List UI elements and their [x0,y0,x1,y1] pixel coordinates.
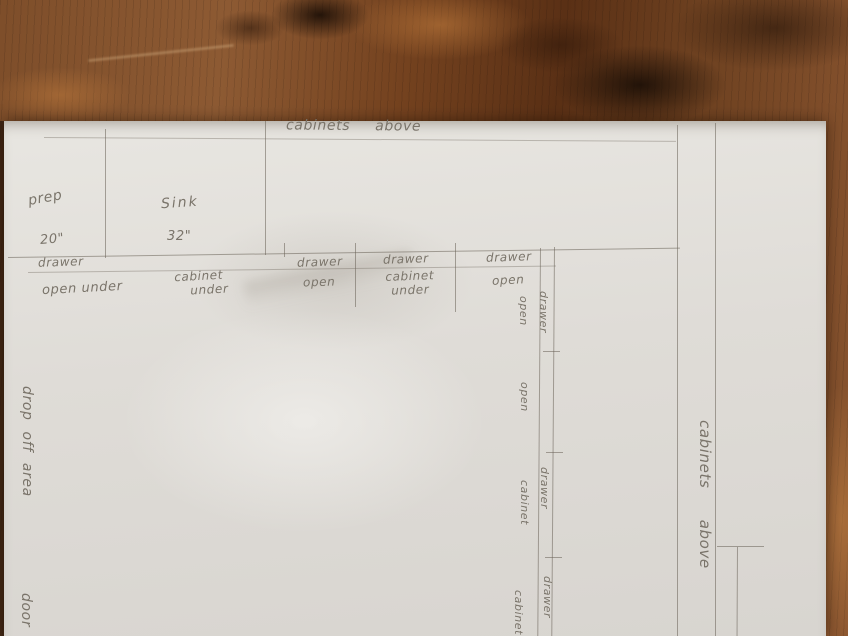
base1-open-under-label: open under [42,280,123,297]
run4-drawer-label: drawer [542,576,553,618]
prep-width-dimension: 20" [39,232,64,247]
photo-kitchen-sketch: cabinets above prep 20" Sink 32" drawer … [0,0,848,636]
corner-mark-horizontal [717,546,764,547]
base3-drawer-label: drawer [297,255,343,269]
base-divider-tick-2 [355,243,356,307]
upper-cabinets-note: cabinets above [286,118,421,133]
run4-cabinet-label: cabinet [513,590,524,635]
base5-drawer-label: drawer [486,250,532,264]
upper-cabinet-line [44,137,676,142]
run-tick-2 [546,452,563,453]
door-note: door [19,593,33,627]
base4-cabinet-under-label: cabinet under [374,269,447,297]
drop-off-area-note: drop off area [20,386,34,497]
corner-mark-vertical [737,547,738,636]
base2-cabinet-under-label: cabinet under [158,268,239,298]
run3-drawer-label: drawer [539,467,550,509]
base1-drawer-label: drawer [38,255,84,269]
base4-line1: cabinet [374,269,446,284]
run1-open-label: open [518,296,529,326]
run1-drawer-label: drawer [538,291,549,333]
sketch-paper: cabinets above prep 20" Sink 32" drawer … [4,121,826,636]
right-wall-line-outer [715,123,716,636]
base5-open-label: open [492,273,525,287]
divider-sink-end [265,121,266,255]
sink-label: Sink [161,195,200,212]
base4-line2: under [374,283,446,298]
run2-open-label: open [519,382,530,412]
prep-area-label: prep [27,188,63,208]
base3-open-label: open [303,275,336,288]
run3-cabinet-label: cabinet [519,480,530,525]
right-wall-line-inner [677,125,678,636]
sink-width-dimension: 32" [167,230,191,243]
base-divider-tick-1 [284,243,285,257]
base4-drawer-label: drawer [383,252,429,266]
divider-prep-sink [105,129,106,258]
run-tick-3 [545,557,562,558]
countertop-line [8,248,680,258]
run-tick-1 [543,351,560,352]
base-divider-tick-3 [455,243,456,312]
right-cabinets-above-note: cabinets above [697,420,712,569]
